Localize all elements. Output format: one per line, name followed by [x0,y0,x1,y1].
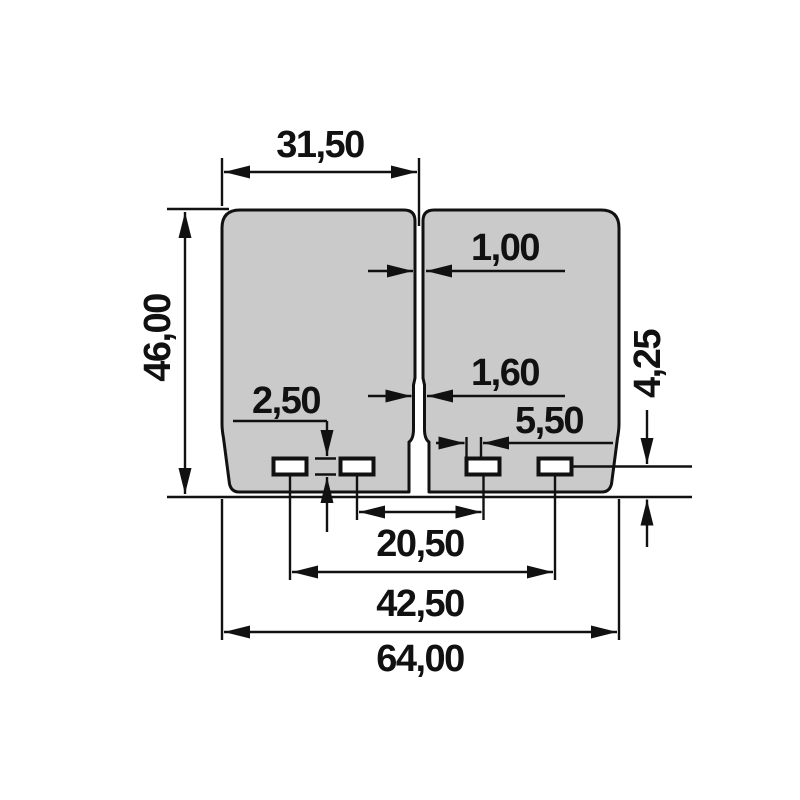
left-petal-outline [222,210,415,492]
label-center-slit-width: 1,00 [471,227,539,269]
label-slot-width: 5,50 [515,400,583,442]
label-petal-height: 46,00 [137,294,179,382]
label-slot-spacing-inner: 20,50 [376,523,464,565]
label-slot-spacing-outer: 42,50 [376,583,464,625]
label-petal-width-top: 31,50 [276,124,364,166]
left-petal-slot-outer [274,459,307,475]
left-petal-slot-inner [341,459,374,475]
label-overall-width: 64,00 [376,638,464,680]
label-center-slit-lower-width: 1,60 [471,352,539,394]
right-petal-slot-outer [539,459,572,475]
right-petal-slot-inner [467,459,500,475]
label-slot-edge-distance: 4,25 [627,329,669,398]
reed-petal-dimension-drawing: 31,50 46,00 1,00 1,60 2,50 5,50 4,25 20,… [0,0,800,800]
technical-drawing-page: 31,50 46,00 1,00 1,60 2,50 5,50 4,25 20,… [0,0,800,800]
reed-petals [222,210,619,492]
label-slot-height: 2,50 [252,380,320,422]
